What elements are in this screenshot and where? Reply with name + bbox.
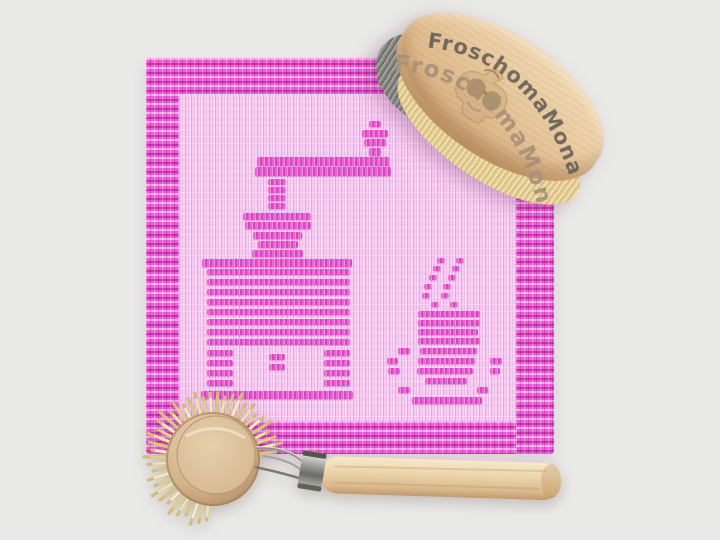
motif-stitch bbox=[422, 293, 430, 298]
dish-brush-head bbox=[166, 412, 260, 506]
motif-stitch bbox=[431, 302, 439, 307]
wire-clamp bbox=[255, 447, 303, 479]
metal-ferrule bbox=[297, 450, 327, 491]
wood-handle bbox=[319, 456, 562, 501]
dish-brush bbox=[105, 392, 585, 540]
motif-stitch bbox=[433, 266, 441, 271]
motif-stitch bbox=[437, 258, 445, 263]
product-photo-scene: FroschomaMona FroschomaMona bbox=[0, 0, 720, 540]
motif-stitch bbox=[429, 275, 437, 280]
motif-stitch bbox=[424, 284, 432, 289]
motif-stitch bbox=[443, 284, 451, 289]
motif-stitch bbox=[441, 293, 449, 298]
motif-stitch bbox=[450, 302, 458, 307]
motif-stitch bbox=[448, 275, 456, 280]
motif-stitch bbox=[456, 258, 464, 263]
motif-stitch bbox=[452, 266, 460, 271]
